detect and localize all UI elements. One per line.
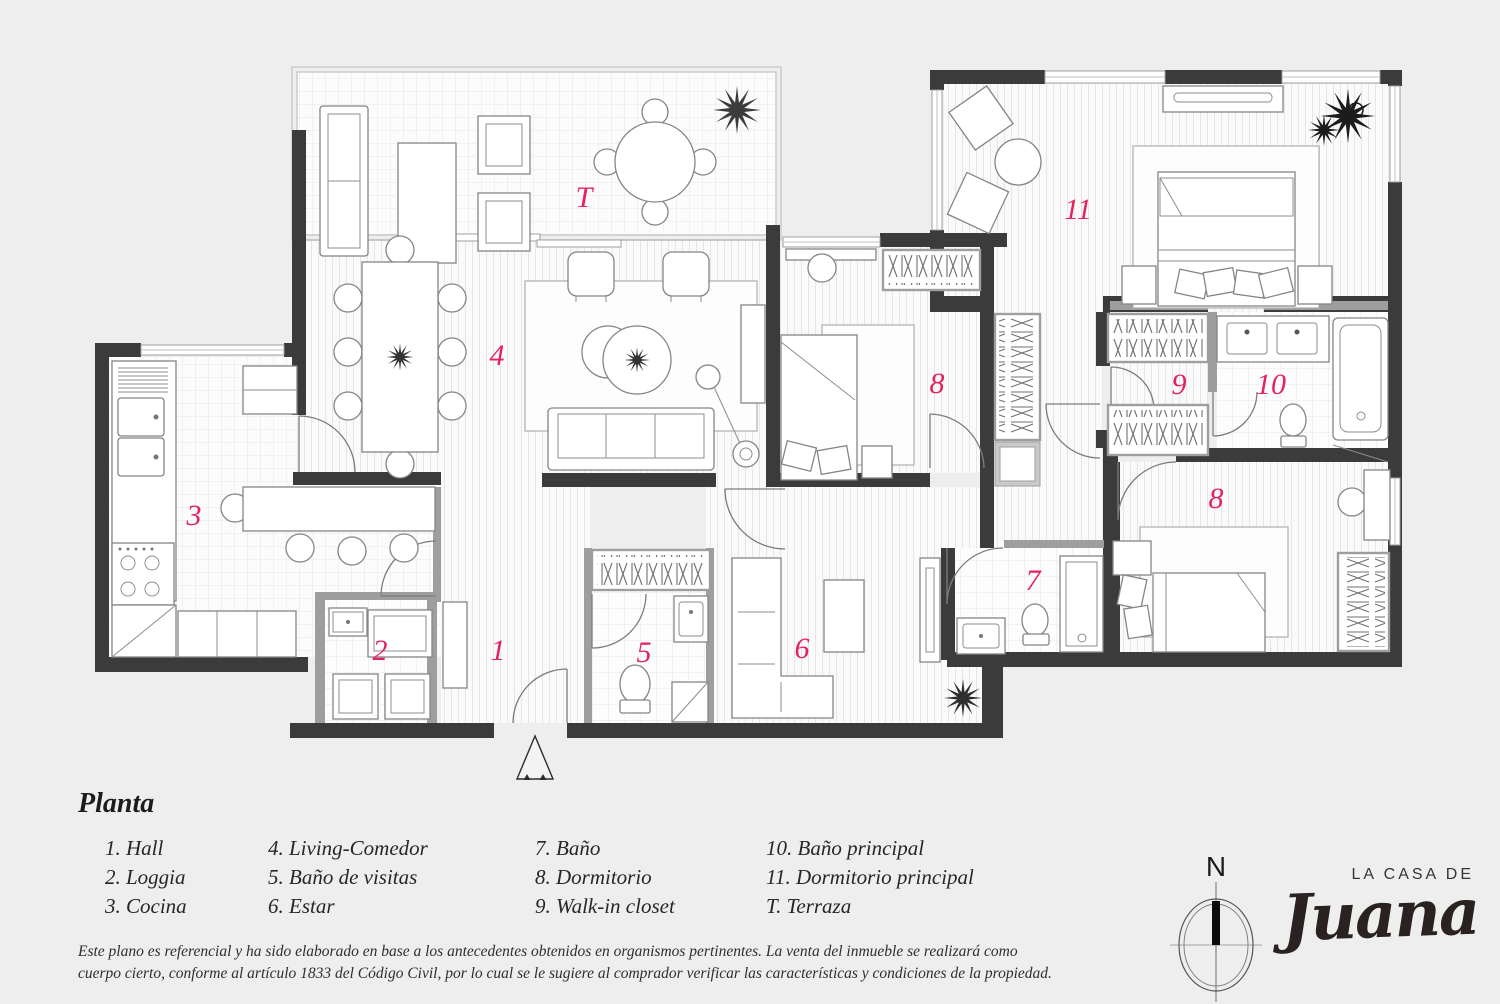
label-walkin: 9 [1172, 368, 1187, 401]
bath5-shower [672, 682, 708, 722]
bath7-shower [1060, 556, 1103, 652]
disclaimer-text: Este plano es referencial y ha sido elab… [78, 941, 1148, 985]
dorm8n-bed [781, 335, 857, 480]
dorm11-nightstand-1 [1122, 266, 1156, 304]
dorm8e-nightstand [1113, 541, 1151, 575]
hall-cabinet [443, 602, 467, 688]
window-right-upper [1390, 86, 1400, 182]
walkin-rail-bottom [1108, 405, 1208, 455]
label-cocina: 3 [186, 499, 202, 532]
logo-script-name: Juana [1281, 875, 1483, 957]
living-sofa [548, 408, 714, 470]
legend-item: 8. Dormitorio [535, 863, 675, 892]
terrace-armchair-2 [478, 193, 530, 251]
dorm11-bed [1158, 172, 1295, 306]
bath7-sink [957, 618, 1005, 654]
legend-column-1: 1. Hall 2. Loggia 3. Cocina [105, 834, 187, 921]
legend-item: 10. Baño principal [766, 834, 974, 863]
compass-icon: N [1168, 850, 1264, 1002]
legend-item: 11. Dormitorio principal [766, 863, 974, 892]
compass-north-label: N [1206, 851, 1226, 882]
bath5-sink [674, 596, 708, 642]
legend-item: 9. Walk-in closet [535, 892, 675, 921]
legend-item: T. Terraza [766, 892, 974, 921]
label-living: 4 [490, 339, 505, 372]
corridor-wardrobe [995, 314, 1040, 486]
dorm8n-bench [862, 446, 892, 478]
legend-item: 6. Estar [268, 892, 428, 921]
kitchen-stove [112, 543, 174, 605]
legend-item: 7. Baño [535, 834, 675, 863]
walkin-rail-top [1108, 314, 1208, 362]
washer-2 [385, 674, 430, 719]
window-dorm-norte [783, 237, 880, 247]
label-dorm-principal: 11 [1064, 193, 1092, 226]
kitchen-cabinets [178, 611, 296, 657]
legend-item: 1. Hall [105, 834, 187, 863]
bathtub [1333, 318, 1388, 462]
label-loggia: 2 [373, 634, 388, 667]
disclaimer-line-2: cuerpo cierto, conforme al artículo 1833… [78, 963, 1148, 985]
terrace-armchair-1 [478, 116, 530, 174]
loggia-sink [329, 608, 367, 636]
entrance-arrow [517, 736, 553, 780]
terrace-sofa [320, 106, 368, 256]
kitchen-fridge [243, 366, 297, 414]
label-terraza: T [576, 181, 595, 214]
label-bano: 7 [1026, 564, 1043, 597]
window-dorm-principal-1 [1045, 71, 1165, 83]
kitchen-corner-cabinet [112, 605, 176, 657]
disclaimer-line-1: Este plano es referencial y ha sido elab… [78, 941, 1148, 963]
floor-plan: T 4 3 2 1 5 6 7 8 8 9 10 11 [0, 0, 1500, 780]
window-dorm-principal-2 [1282, 71, 1380, 83]
legend-column-3: 7. Baño 8. Dormitorio 9. Walk-in closet [535, 834, 675, 921]
legend-column-2: 4. Living-Comedor 5. Baño de visitas 6. … [268, 834, 428, 921]
living-armchair-2 [663, 252, 709, 302]
label-hall: 1 [491, 634, 506, 667]
label-bano-visitas: 5 [637, 636, 652, 669]
floor-plan-page: T 4 3 2 1 5 6 7 8 8 9 10 11 Planta 1. Ha… [0, 0, 1500, 1004]
legend-item: 5. Baño de visitas [268, 863, 428, 892]
dorm11-side-table [995, 139, 1041, 185]
living-armchair-1 [568, 252, 614, 302]
legend-item: 2. Loggia [105, 863, 187, 892]
hall-closet [592, 550, 710, 590]
dorm8e-closet [1338, 553, 1389, 651]
dorm8e-desk [1364, 470, 1390, 540]
plan-title: Planta [78, 788, 154, 820]
label-dorm8-norte: 8 [930, 367, 945, 400]
legend-column-4: 10. Baño principal 11. Dormitorio princi… [766, 834, 974, 921]
dorm8n-chair [808, 254, 836, 282]
dorm8e-chair [1338, 488, 1366, 516]
label-bano-principal: 10 [1256, 368, 1286, 401]
living-console [741, 305, 765, 403]
legend-item: 4. Living-Comedor [268, 834, 428, 863]
label-dorm8-este: 8 [1209, 482, 1224, 515]
window-dorm-principal-left [932, 90, 942, 230]
bath10-toilet [1280, 404, 1306, 447]
bath10-vanity [1217, 316, 1329, 362]
dorm11-dresser [1163, 86, 1283, 112]
bath5-toilet [620, 665, 650, 713]
window-cocina [141, 345, 284, 355]
legend-item: 3. Cocina [105, 892, 187, 921]
dorm11-nightstand-2 [1298, 266, 1332, 304]
brand-logo: LA CASA DE Juana [1282, 866, 1482, 953]
dorm8n-closet [883, 250, 980, 290]
tv-console [920, 558, 940, 662]
bath7-toilet [1022, 604, 1049, 645]
washer-1 [333, 674, 378, 719]
label-estar: 6 [795, 632, 810, 665]
estar-table [824, 580, 864, 652]
window-dorm-este [1390, 478, 1400, 545]
